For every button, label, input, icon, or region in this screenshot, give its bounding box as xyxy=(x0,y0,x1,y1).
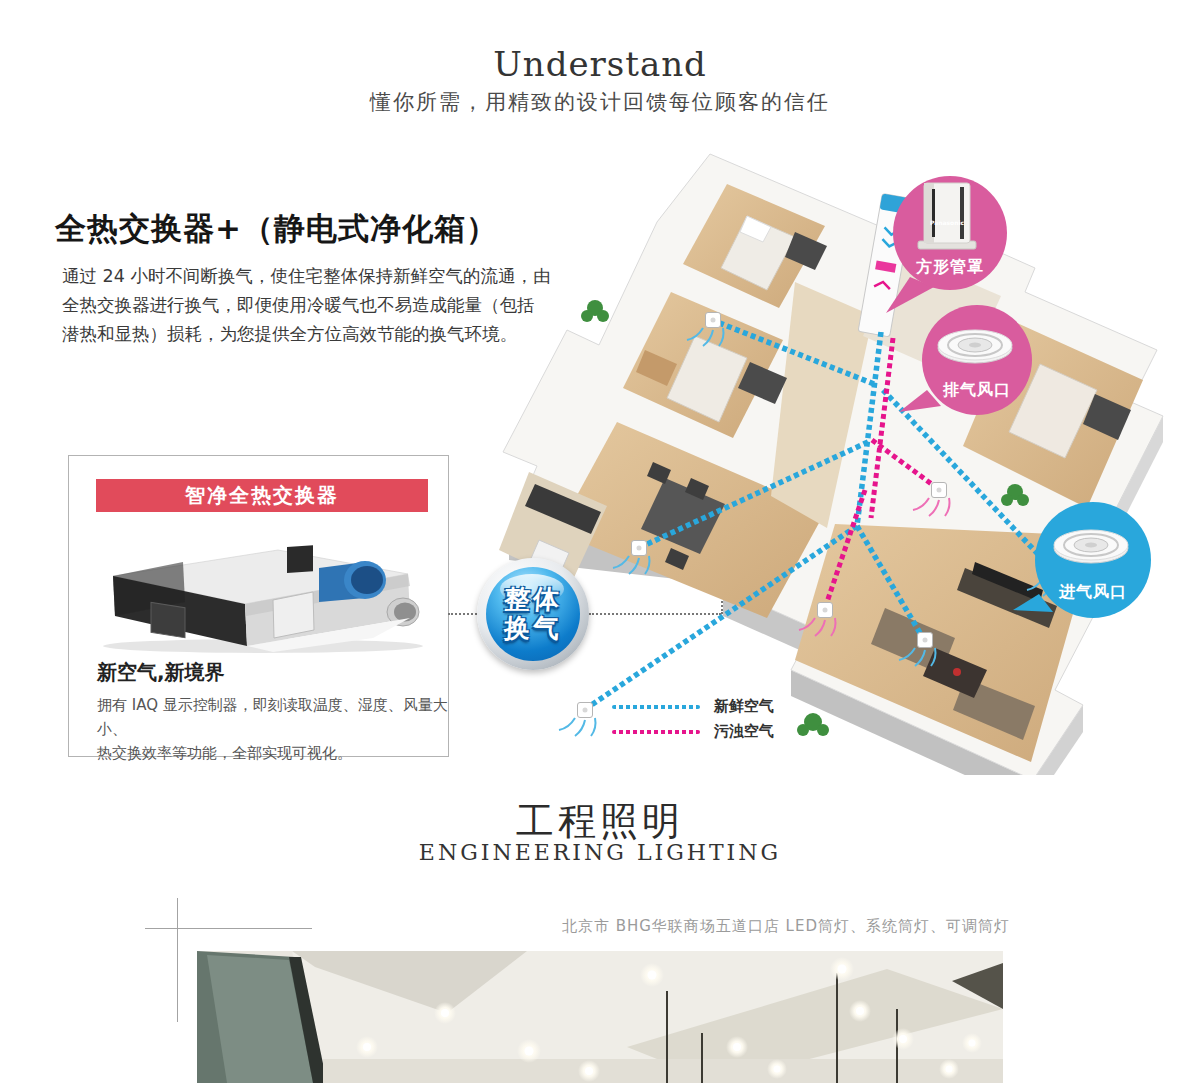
callout-label: 进气风口 xyxy=(1058,582,1127,601)
page-title: Understand xyxy=(0,44,1200,84)
legend-fresh-air: 新鲜空气 xyxy=(612,694,774,719)
fresh-air-line-swatch xyxy=(612,705,700,709)
heat-exchanger-product-image xyxy=(73,542,443,654)
legend-dirty-air: 污浊空气 xyxy=(612,719,774,744)
dirty-air-line-swatch xyxy=(612,730,700,734)
square-duct-cover-icon: Panasonic xyxy=(918,183,976,249)
product-banner: 智净全热交换器 xyxy=(96,479,428,512)
product-title: 新空气,新境界 xyxy=(97,659,225,686)
callout-exhaust-vent: 排气风口 xyxy=(899,298,1055,428)
page-subtitle: 懂你所需，用精致的设计回馈每位顾客的信任 xyxy=(0,88,1200,116)
badge-text-line1: 整体 xyxy=(503,585,563,614)
floor-plan-illustration xyxy=(495,140,1175,775)
callout-label: 排气风口 xyxy=(942,380,1011,399)
ceiling-photo xyxy=(197,951,1003,1083)
airflow-legend: 新鲜空气 污浊空气 xyxy=(612,694,774,744)
desc-line: 拥有 IAQ 显示控制器，即刻读取温度、湿度、风量大小、 xyxy=(97,693,448,741)
badge-core: 整体 换气 xyxy=(486,567,580,661)
callout-intake-vent: 进气风口 xyxy=(1015,498,1171,633)
exchanger-heading: 全热交换器+（静电式净化箱） xyxy=(55,208,498,250)
svg-text:Panasonic: Panasonic xyxy=(930,219,965,226)
brochure-page: Understand 懂你所需，用精致的设计回馈每位顾客的信任 全热交换器+（静… xyxy=(0,0,1200,1083)
connector-line xyxy=(448,613,477,615)
round-vent-icon xyxy=(1054,530,1128,563)
overall-ventilation-badge: 整体 换气 xyxy=(477,558,589,670)
badge-text-line2: 换气 xyxy=(503,614,563,643)
product-description: 拥有 IAQ 显示控制器，即刻读取温度、湿度、风量大小、 热交换效率等功能，全部… xyxy=(97,693,448,765)
callout-square-duct: Panasonic 方形管罩 xyxy=(872,169,1028,319)
lighting-title-en: ENGINEERING LIGHTING xyxy=(0,840,1200,865)
round-vent-icon xyxy=(938,330,1012,363)
desc-line: 热交换效率等功能，全部实现可视化。 xyxy=(97,741,448,765)
callout-label: 方形管罩 xyxy=(915,257,984,276)
product-card: 智净全热交换器 新空气,新境界 拥有 IAQ 显示控制器 xyxy=(68,455,449,757)
photo-caption: 北京市 BHG华联商场五道口店 LED筒灯、系统筒灯、可调筒灯 xyxy=(0,917,1010,936)
